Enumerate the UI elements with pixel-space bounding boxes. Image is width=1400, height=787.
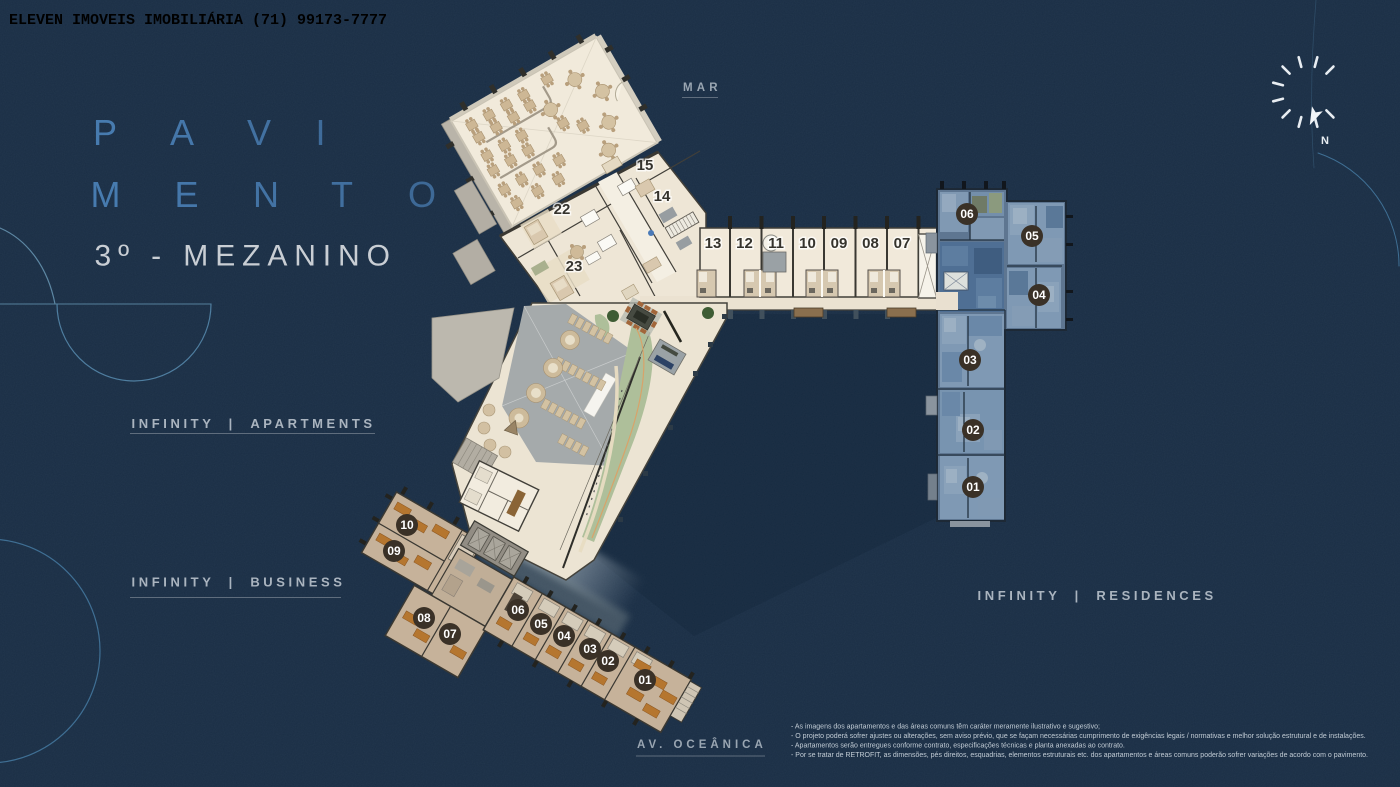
svg-text:04: 04 [1032,288,1046,302]
svg-text:- As imagens dos apartamentos: - As imagens dos apartamentos e das área… [791,724,1100,731]
svg-text:22: 22 [554,201,571,218]
svg-text:04: 04 [557,629,571,643]
svg-text:ELEVEN IMOVEIS IMOBILIÁRIA (71: ELEVEN IMOVEIS IMOBILIÁRIA (71) 99173-77… [9,11,387,29]
svg-text:06: 06 [960,207,974,221]
svg-text:08: 08 [417,611,431,625]
svg-text:05: 05 [1025,229,1039,243]
svg-text:23: 23 [566,258,583,275]
svg-text:06: 06 [511,603,525,617]
svg-text:3º - MEZANINO: 3º - MEZANINO [95,240,397,273]
svg-text:INFINITY | BUSINESS: INFINITY | BUSINESS [132,575,346,590]
svg-text:INFINITY | RESIDENCES: INFINITY | RESIDENCES [978,588,1217,603]
svg-text:02: 02 [966,423,980,437]
svg-text:15: 15 [637,157,654,174]
svg-text:V: V [247,112,271,153]
svg-text:09: 09 [831,235,848,252]
svg-text:11: 11 [768,235,784,252]
svg-text:03: 03 [583,642,597,656]
svg-text:MAR: MAR [683,82,722,94]
svg-text:M: M [91,174,121,215]
svg-text:02: 02 [601,654,615,668]
svg-text:07: 07 [894,235,911,252]
svg-text:E: E [174,174,198,215]
svg-text:- O projeto poderá sofrer ajus: - O projeto poderá sofrer ajustes ou alt… [791,733,1366,740]
svg-text:12: 12 [736,235,753,252]
svg-text:O: O [408,174,436,215]
svg-text:10: 10 [400,518,414,532]
svg-text:10: 10 [799,235,816,252]
svg-text:14: 14 [654,188,671,205]
svg-text:- Apartamentos serão entregues: - Apartamentos serão entregues conforme … [791,743,1125,750]
svg-text:08: 08 [862,235,879,252]
svg-text:A: A [170,112,194,153]
svg-text:13: 13 [705,235,722,252]
svg-text:AV. OCEÂNICA: AV. OCEÂNICA [637,738,767,751]
svg-text:N: N [1321,135,1329,147]
svg-text:P: P [93,112,117,153]
svg-text:07: 07 [443,627,457,641]
svg-text:01: 01 [638,673,652,687]
svg-text:09: 09 [387,544,401,558]
svg-text:03: 03 [963,353,977,367]
svg-text:INFINITY | APARTMENTS: INFINITY | APARTMENTS [132,416,376,431]
svg-text:T: T [331,174,353,215]
svg-text:- Por se tratar de RETROFIT, a: - Por se tratar de RETROFIT, as dimensõe… [791,752,1368,759]
svg-text:I: I [315,112,325,153]
svg-text:05: 05 [534,617,548,631]
svg-text:01: 01 [966,480,980,494]
svg-text:N: N [253,174,279,215]
